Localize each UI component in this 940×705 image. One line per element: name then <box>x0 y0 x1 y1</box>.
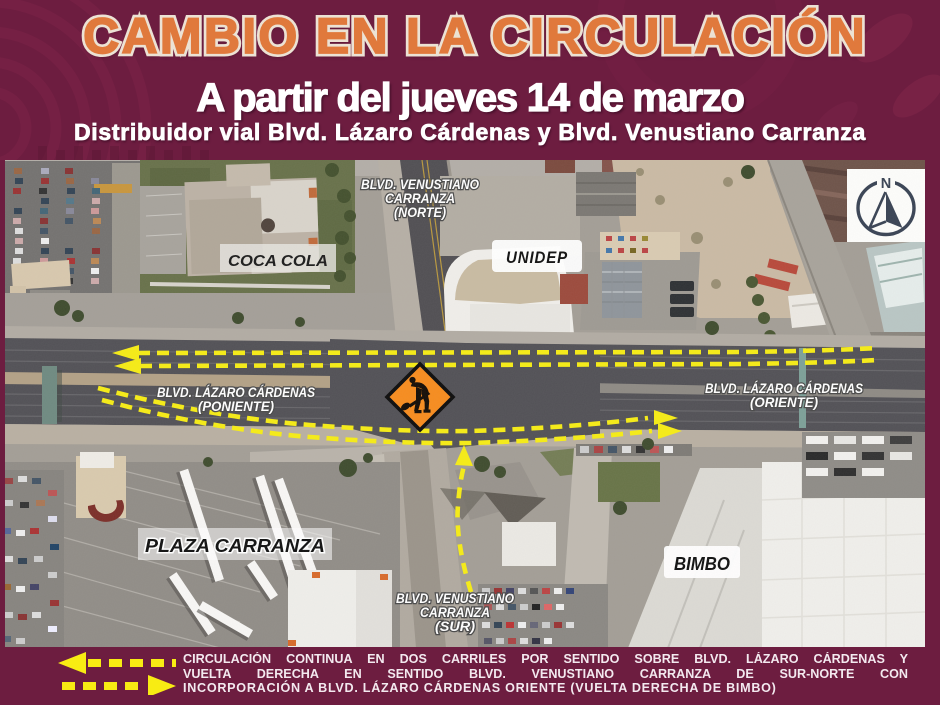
svg-text:COCA COLA: COCA COLA <box>228 253 328 270</box>
svg-text:UNIDEP: UNIDEP <box>506 248 568 267</box>
svg-text:BLVD. VENUSTIANO: BLVD. VENUSTIANO <box>396 591 514 606</box>
svg-text:(SUR): (SUR) <box>435 619 476 634</box>
svg-text:(PONIENTE): (PONIENTE) <box>198 399 274 414</box>
svg-text:BIMBO: BIMBO <box>674 554 730 574</box>
svg-text:CARRANZA: CARRANZA <box>385 191 455 206</box>
svg-text:(NORTE): (NORTE) <box>394 205 446 220</box>
svg-text:CARRANZA: CARRANZA <box>420 605 490 620</box>
svg-text:BLVD. LÁZARO CÁRDENAS: BLVD. LÁZARO CÁRDENAS <box>705 381 863 396</box>
svg-text:PLAZA CARRANZA: PLAZA CARRANZA <box>145 536 325 556</box>
svg-text:(ORIENTE): (ORIENTE) <box>750 395 818 410</box>
svg-text:BLVD. LÁZARO CÁRDENAS: BLVD. LÁZARO CÁRDENAS <box>157 385 315 400</box>
svg-text:BLVD. VENUSTIANO: BLVD. VENUSTIANO <box>361 177 479 192</box>
svg-text:N: N <box>881 176 891 192</box>
